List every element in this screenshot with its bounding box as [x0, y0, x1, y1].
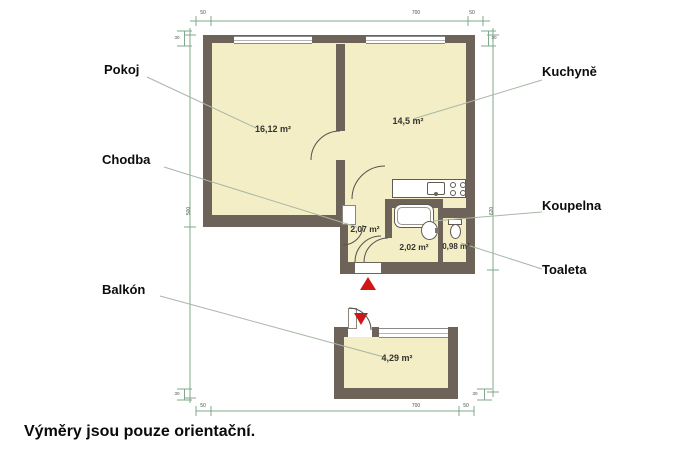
label-chodba: Chodba: [102, 152, 150, 167]
wall-balcony-top-left: [334, 327, 348, 337]
wall-bath-toilet-divider: [438, 208, 443, 262]
basin-tap-icon: [435, 228, 439, 233]
area-toaleta: 0,98 m²: [437, 242, 475, 251]
stove-burner-icon: [450, 182, 456, 188]
balcony-door-gap: [348, 328, 372, 337]
disclaimer-note: Výměry jsou pouze orientační.: [24, 423, 255, 441]
window-pane: [234, 40, 312, 41]
dim-mark-bottom-left: 30: [172, 391, 182, 396]
hall-door-leaf: [342, 205, 356, 225]
label-toaleta: Toaleta: [542, 262, 587, 277]
dim-left-side: 500: [186, 202, 192, 220]
dim-bottom-left: 50: [194, 403, 212, 409]
entrance-arrow-down-icon: [354, 313, 368, 325]
wall-hall-bath-divider: [385, 208, 392, 238]
dim-top-left: 50: [194, 10, 212, 16]
dimension-ticks-bottom: [196, 406, 474, 416]
window-pokoj: [234, 36, 312, 44]
dim-mark-top-left: 30: [172, 35, 182, 40]
area-koupelna: 2,02 m²: [392, 242, 436, 252]
dim-mark-top-right: 30: [489, 35, 499, 40]
floor-plan-page: Pokoj Kuchyně Chodba Koupelna Toaleta Ba…: [0, 0, 686, 457]
entrance-door-gap: [355, 263, 381, 273]
dim-top-middle: 700: [405, 10, 427, 16]
wall-balcony-top-pier: [372, 327, 379, 337]
toilet-bowl: [450, 224, 461, 239]
wall-left: [203, 35, 212, 227]
window-kuchyne: [366, 36, 445, 44]
dim-bottom-middle: 700: [405, 403, 427, 409]
dimension-ticks-top: [196, 16, 483, 26]
sink-faucet-icon: [434, 192, 438, 196]
area-balkon: 4,29 m²: [374, 353, 420, 363]
stove-burner-icon: [450, 190, 456, 196]
window-pane: [366, 40, 445, 41]
label-kuchyne: Kuchyně: [542, 64, 597, 79]
dim-top-right: 50: [463, 10, 481, 16]
dim-bottom-right: 50: [457, 403, 475, 409]
area-chodba: 2,07 m²: [344, 224, 386, 234]
stove-burner-icon: [460, 190, 466, 196]
entrance-arrow-up-icon: [360, 277, 376, 290]
label-balkon: Balkón: [102, 282, 145, 297]
label-pokoj: Pokoj: [104, 62, 139, 77]
label-koupelna: Koupelna: [542, 198, 601, 213]
wall-pokoj-bottom: [203, 215, 348, 227]
dim-right-side: 620: [489, 202, 495, 220]
area-pokoj: 16,12 m²: [246, 124, 300, 134]
window-balcony: [379, 328, 448, 338]
dim-mark-bottom-right: 30: [470, 391, 480, 396]
area-kuchyne: 14,5 m²: [385, 116, 431, 126]
wall-right: [466, 35, 475, 274]
wall-balcony-bottom: [334, 388, 458, 399]
stove-burner-icon: [460, 182, 466, 188]
window-pane: [379, 333, 448, 334]
wall-divider-upper: [336, 44, 345, 131]
